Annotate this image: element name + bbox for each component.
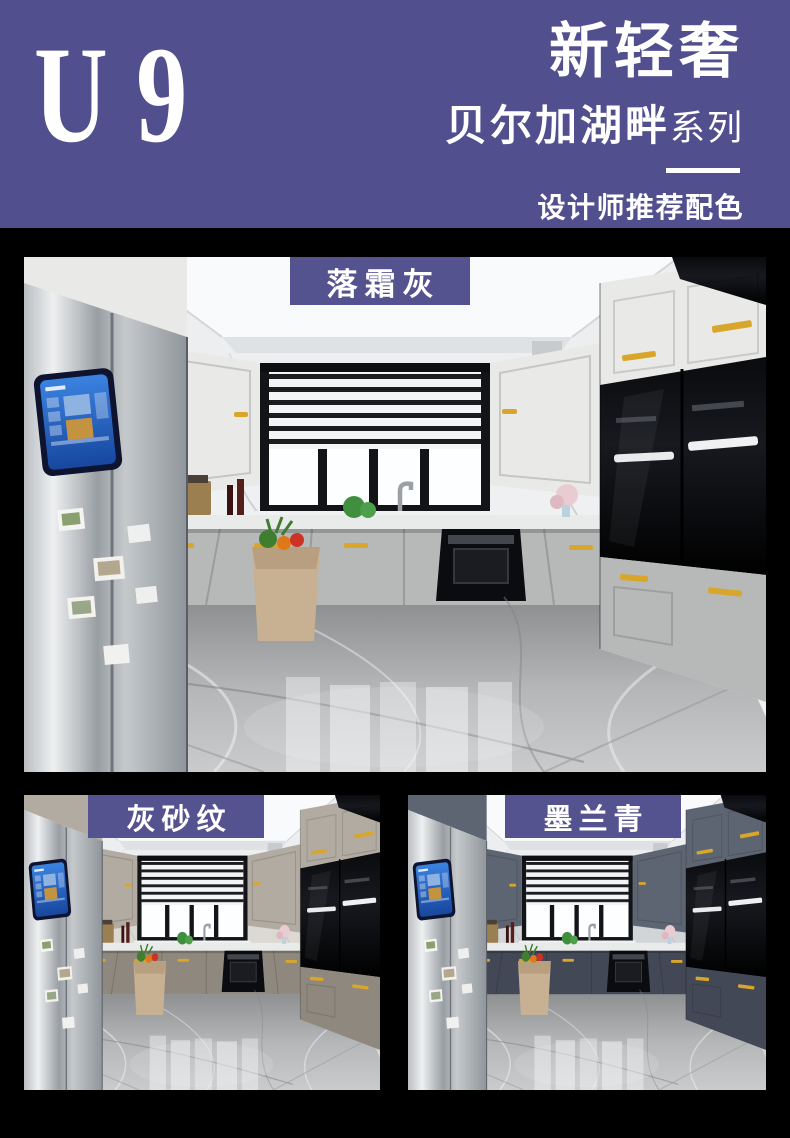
series-name: 贝尔加湖畔: [445, 101, 670, 150]
kitchen-scene-illustration: [408, 795, 766, 1090]
series-suffix: 系列: [670, 109, 744, 149]
kitchen-scene-illustration: [24, 795, 380, 1090]
series-headline: 新轻奢: [445, 20, 744, 85]
kitchen-photo-ink-blue: 墨兰青: [408, 795, 766, 1090]
kitchen-photo-frost-gray: 落霜灰: [24, 257, 766, 772]
colorway-label-gray-sand: 灰砂纹: [88, 795, 264, 838]
poster-page: U 9 新轻奢 贝尔加湖畔系列 设计师推荐配色: [0, 0, 790, 1138]
header-banner: U 9 新轻奢 贝尔加湖畔系列 设计师推荐配色: [0, 0, 790, 228]
series-name-line: 贝尔加湖畔系列: [445, 92, 744, 153]
header-text-block: 新轻奢 贝尔加湖畔系列 设计师推荐配色: [445, 20, 744, 226]
kitchen-scene-illustration: [24, 257, 766, 772]
brand-logo: U 9: [34, 26, 189, 164]
colorway-label-ink-blue: 墨兰青: [505, 795, 681, 838]
divider-line: [666, 168, 740, 173]
kitchen-photo-gray-sand: 灰砂纹: [24, 795, 380, 1090]
colorway-label-frost-gray: 落霜灰: [290, 257, 470, 305]
tagline: 设计师推荐配色: [445, 186, 744, 226]
